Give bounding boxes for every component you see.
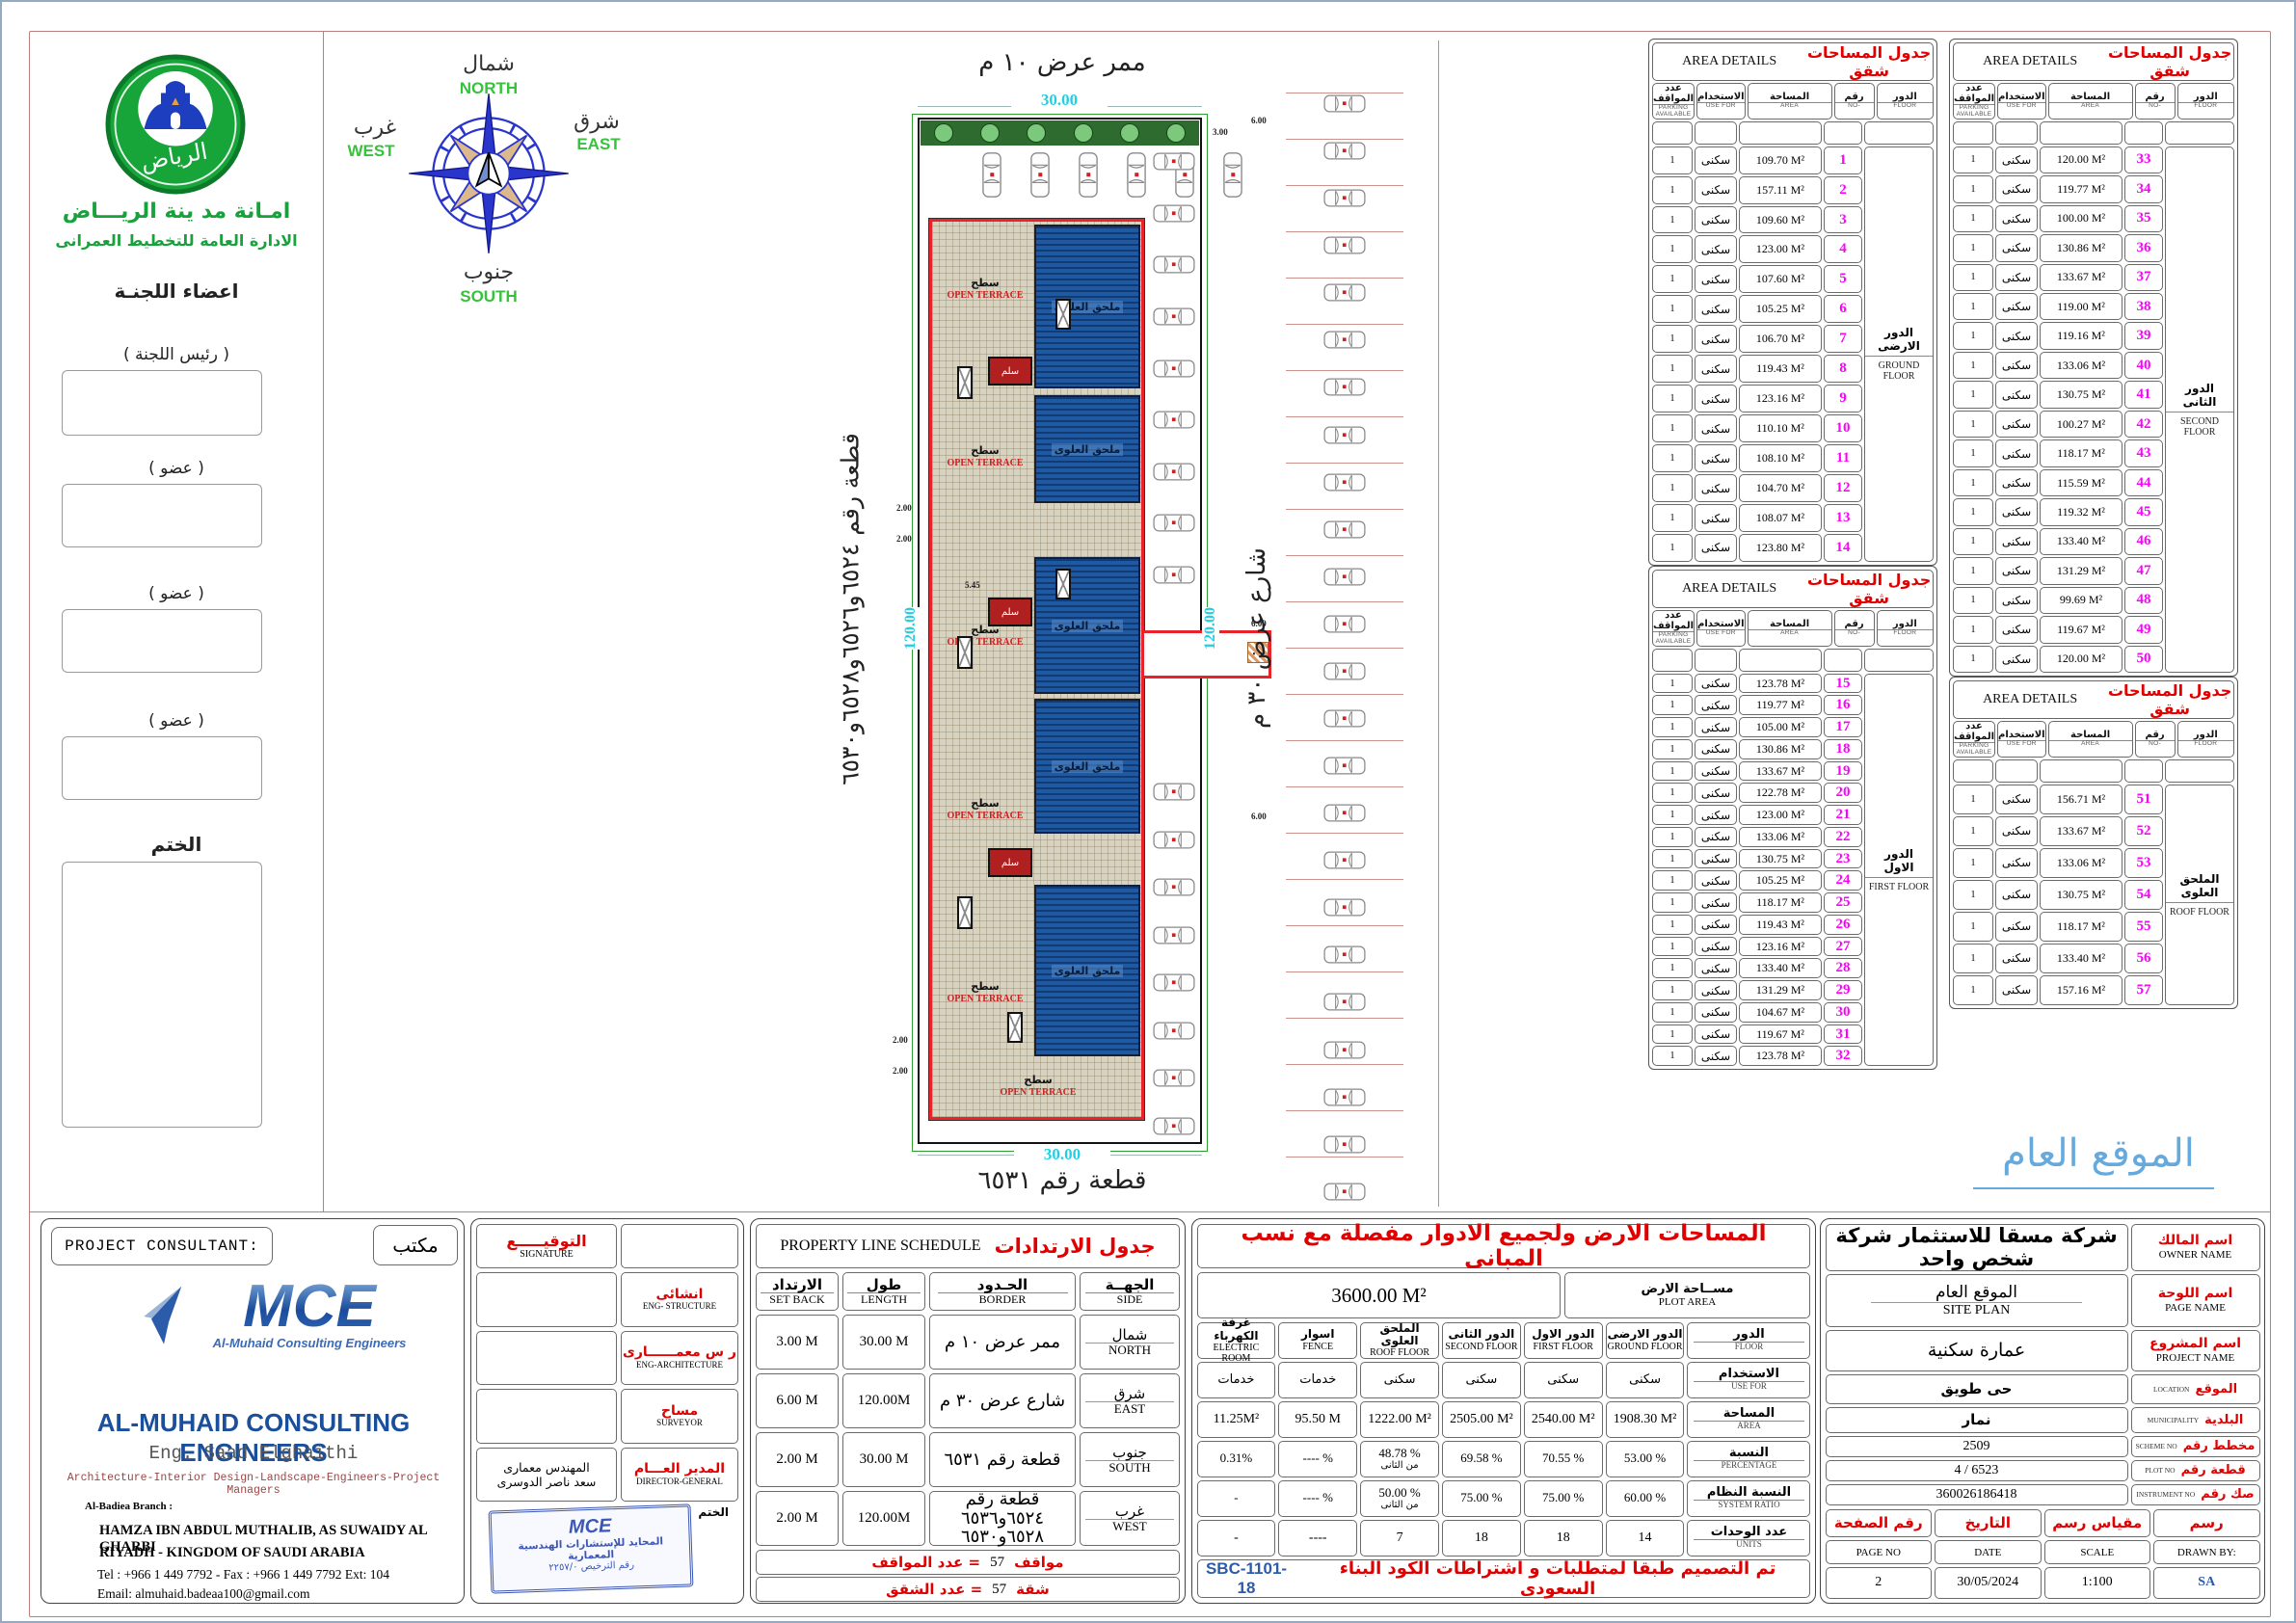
parking-cell: 1	[1652, 849, 1693, 869]
ratio-value-cell: 95.50 M	[1278, 1401, 1357, 1438]
parking-cell: 1	[1953, 381, 1993, 408]
use-cell: سكنى	[1995, 411, 2038, 438]
parking-cell: 1	[1652, 295, 1693, 323]
consultant-engineer: Eng. Saad Elghaithi	[41, 1443, 466, 1464]
header-cell: رقمNO-	[1834, 83, 1875, 120]
street-edge-line	[1438, 40, 1439, 1207]
parked-car-icon	[1286, 1086, 1403, 1108]
south-plot-label: قطعة رقم ٦٥٣١	[947, 1166, 1178, 1195]
parked-car-icon	[1286, 140, 1403, 162]
parked-car-icon	[1149, 781, 1199, 803]
area-table-title: AREA DETAILSجدول المساحات شقق	[1953, 680, 2234, 719]
info-value: حى طويق	[1826, 1374, 2128, 1404]
header-cell: المساحةAREA	[1748, 610, 1832, 647]
stamp-mce: MCE	[569, 1515, 612, 1538]
use-cell: سكنى	[1995, 146, 2038, 173]
header-cell: عدد المواقفPARKING AVAILABLE	[1652, 83, 1695, 120]
apartment-no-cell: 40	[2124, 352, 2163, 379]
shaft-box	[1007, 1012, 1023, 1043]
parked-car-icon	[1286, 329, 1403, 351]
apartment-no-cell: 38	[2124, 293, 2163, 320]
area-cell: 133.40 M²	[2040, 944, 2122, 973]
area-cell: 107.60 M²	[1739, 265, 1822, 293]
area-cell: 104.70 M²	[1739, 474, 1822, 502]
area-cell: 130.75 M²	[1739, 849, 1822, 869]
area-table-ground: AREA DETAILSجدول المساحات شققعدد المواقف…	[1648, 39, 1937, 566]
use-cell: سكنى	[1695, 915, 1737, 935]
use-cell: سكنى	[1995, 322, 2038, 349]
parking-cell: 1	[1953, 234, 1993, 261]
apartment-no-cell: 24	[1824, 870, 1862, 891]
use-cell: سكنى	[1695, 474, 1737, 502]
parked-car-icon	[1149, 358, 1199, 380]
area-cell: 157.16 M²	[2040, 975, 2122, 1005]
east-street-label: شارع عرض ٣٠ م	[1242, 547, 1271, 729]
apartment-no-cell: 30	[1824, 1002, 1862, 1023]
parking-cell: 1	[1652, 717, 1693, 737]
parked-car-icon	[1286, 991, 1403, 1013]
apartment-no-cell: 36	[2124, 234, 2163, 261]
apartment-no-cell: 53	[2124, 848, 2163, 878]
floor-cell: الملحق العلوىROOF FLOOR	[2165, 785, 2234, 1005]
apartment-no-cell: 16	[1824, 695, 1862, 715]
shaft-box	[1055, 569, 1071, 599]
header-cell: رقمNO-	[1834, 610, 1875, 647]
area-cell: 109.60 M²	[1739, 206, 1822, 234]
apartment-no-cell: 50	[2124, 646, 2163, 673]
area-cell: 133.06 M²	[1739, 827, 1822, 847]
area-cell: 110.10 M²	[1739, 414, 1822, 442]
info-label: SCHEME NOمخطط رقم	[2131, 1436, 2260, 1457]
address-line2: RIYADH - KINGDOM OF SAUDI ARABIA	[99, 1545, 461, 1561]
roof-annex-block: ملحق العلوى	[1034, 395, 1140, 503]
parking-cell: 1	[1652, 958, 1693, 978]
parked-car-icon	[1149, 1115, 1199, 1137]
ratio-value-cell: 18	[1442, 1520, 1521, 1556]
parked-car-icon	[1286, 660, 1403, 682]
info-value: شركة مسقا للاستثمار شركة شخص واحد	[1826, 1224, 2128, 1271]
use-cell: سكنى	[1995, 205, 2038, 232]
ratio-value-cell: -	[1197, 1520, 1276, 1556]
area-cell: 123.16 M²	[1739, 385, 1822, 412]
header-cell: رقمNO-	[2135, 721, 2176, 758]
member-signature-box	[62, 484, 262, 547]
ratio-row-label: النسبة النظامSYSTEM RATIO	[1687, 1480, 1810, 1517]
length-cell: 30.00 M	[842, 1315, 925, 1370]
use-cell: سكنى	[1695, 827, 1737, 847]
parking-cell: 1	[1953, 411, 1993, 438]
info-value: 4 / 6523	[1826, 1460, 2128, 1481]
parked-car-icon	[1286, 519, 1403, 541]
parked-car-icon	[1149, 876, 1199, 898]
use-cell: سكنى	[1995, 785, 2038, 814]
title-strip-cell: التاريخDATE30/05/2024	[1934, 1507, 2043, 1600]
area-cell: 133.06 M²	[2040, 848, 2122, 878]
apartment-no-cell: 4	[1824, 235, 1862, 263]
member-signature-box	[62, 736, 262, 800]
use-cell: سكنى	[1995, 381, 2038, 408]
area-cell: 105.00 M²	[1739, 717, 1822, 737]
area-table-second: AREA DETAILSجدول المساحات شققعدد المواقف…	[1949, 39, 2238, 677]
compass-east-ar: شرق	[563, 110, 630, 134]
area-cell: 133.40 M²	[2040, 528, 2122, 555]
parking-cell: 1	[1652, 146, 1693, 174]
member-label: ( عضو )	[40, 711, 312, 731]
signature-space: المهندس معمارىسعد ناصر الدوسرى	[476, 1448, 617, 1503]
info-row: 4 / 6523PLOT NOقطعة رقم	[1824, 1458, 2261, 1482]
parked-car-icon	[1286, 707, 1403, 730]
apartment-no-cell: 37	[2124, 264, 2163, 291]
use-cell: سكنى	[1995, 944, 2038, 973]
ratio-row-label: المساحةAREA	[1687, 1401, 1810, 1438]
ratio-value-cell: سكنى	[1442, 1362, 1521, 1398]
use-cell: سكنى	[1995, 293, 2038, 320]
parked-car-icon	[1286, 376, 1403, 398]
area-cell: 118.17 M²	[1739, 892, 1822, 913]
parking-cell: 1	[1652, 1002, 1693, 1023]
apartment-no-cell: 10	[1824, 414, 1862, 442]
parked-car-icon	[1149, 924, 1199, 946]
length-cell: 120.00M	[842, 1491, 925, 1546]
parking-cell: 1	[1953, 587, 1993, 614]
parking-cell: 1	[1652, 695, 1693, 715]
ratio-value-cell: 0.31%	[1197, 1441, 1276, 1477]
compass-west-en: WEST	[337, 142, 405, 161]
stair-block: سلم	[988, 848, 1032, 877]
use-cell: سكنى	[1695, 761, 1737, 782]
side-cell: جنوبSOUTH	[1080, 1432, 1180, 1487]
parked-car-icon	[1286, 234, 1403, 256]
ratio-value-cell: غرفة الكهرباءELECTRIC ROOM	[1197, 1322, 1276, 1359]
shaft-box	[957, 366, 973, 399]
area-cell: 133.67 M²	[1739, 761, 1822, 782]
area-cell: 119.32 M²	[2040, 498, 2122, 525]
apartment-no-cell: 23	[1824, 849, 1862, 869]
authority-name: امـانة مد ينة الريـــاض	[40, 200, 312, 224]
apartment-no-cell: 56	[2124, 944, 2163, 973]
ratio-row: -----7181814عدد الوحداتUNITS	[1195, 1518, 1812, 1557]
area-cell: 123.80 M²	[1739, 534, 1822, 562]
ratio-value-cell: 2540.00 M²	[1524, 1401, 1603, 1438]
parking-cell: 1	[1953, 975, 1993, 1005]
apartment-no-cell: 27	[1824, 937, 1862, 957]
signature-space	[476, 1389, 617, 1444]
parking-cell: 1	[1652, 980, 1693, 1000]
floor-cell: الدور الاولFIRST FLOOR	[1864, 674, 1934, 1066]
parked-car-icon	[1286, 849, 1403, 871]
area-cell: 130.86 M²	[1739, 739, 1822, 759]
parking-cell: 1	[1953, 175, 1993, 202]
ratio-row-label: عدد الوحداتUNITS	[1687, 1520, 1810, 1556]
units-count-row: عدد الشقق = 57 شقة	[756, 1577, 1180, 1602]
info-value: 360026186418	[1826, 1484, 2128, 1505]
signature-role-label: انشائىENG- STRUCTURE	[621, 1272, 738, 1327]
area-cell: 119.67 M²	[1739, 1024, 1822, 1045]
use-cell: سكنى	[1995, 912, 2038, 942]
apartment-no-cell: 29	[1824, 980, 1862, 1000]
ratio-value-cell: 11.25M²	[1197, 1401, 1276, 1438]
area-table-title: AREA DETAILSجدول المساحات شقق	[1652, 570, 1934, 608]
apartment-no-cell: 35	[2124, 205, 2163, 232]
header-cell: الاستخدامUSE FOR	[1696, 610, 1746, 647]
header-cell: الدورFLOOR	[1877, 83, 1934, 120]
schedule-header-cell: الارتدادSET BACK	[756, 1272, 839, 1311]
parked-car-icon	[968, 163, 1016, 187]
parked-car-icon	[1149, 564, 1199, 586]
schedule-header-cell: الجهــةSIDE	[1080, 1272, 1180, 1311]
property-schedule-section: PROPERTY LINE SCHEDULE جدول الارتدادات ا…	[750, 1218, 1186, 1604]
stair-block: سلم	[988, 598, 1032, 626]
use-cell: سكنى	[1695, 146, 1737, 174]
use-cell: سكنى	[1995, 175, 2038, 202]
terrace-label: سطحOPEN TERRACE	[944, 798, 1027, 821]
building-outline: ملحق العلوى ملحق العلوى ملحق العلوى ملحق…	[929, 219, 1144, 1120]
floor-cell: الدور الثانىSECOND FLOOR	[2165, 146, 2234, 673]
use-cell: سكنى	[1695, 534, 1737, 562]
top-dimension: 30.00	[1011, 91, 1108, 110]
use-cell: سكنى	[1995, 848, 2038, 878]
header-cell: الاستخدامUSE FOR	[1997, 83, 2046, 120]
parked-car-icon	[1149, 512, 1199, 534]
parking-cell: 1	[1652, 915, 1693, 935]
inner-parking-bottom	[1149, 781, 1199, 1137]
branch-label: Al-Badiea Branch :	[85, 1501, 173, 1512]
parked-car-icon	[1286, 566, 1403, 588]
area-table-body: 111111111111111111سكنىسكنىسكنىسكنىسكنىسك…	[1952, 120, 2235, 674]
title-strip-cell: مقياس رسمSCALE1:100	[2042, 1507, 2152, 1600]
parking-cell: 1	[1652, 504, 1693, 532]
consultant-section: PROJECT CONSULTANT: مكتب MCE Al-Muhaid C…	[40, 1218, 465, 1604]
use-cell: سكنى	[1995, 646, 2038, 673]
terrace-label: سطحOPEN TERRACE	[944, 445, 1027, 468]
stamp-label: الختم	[40, 833, 312, 856]
header-cell: المساحةAREA	[2048, 83, 2133, 120]
parking-cell: 1	[1652, 761, 1693, 782]
area-table-title: AREA DETAILSجدول المساحات شقق	[1652, 42, 1934, 81]
shaft-box	[957, 896, 973, 929]
tree-icon	[1166, 123, 1186, 143]
consultant-header: PROJECT CONSULTANT:	[51, 1227, 273, 1265]
design-code-note: SBC-1101-18 تم التصميم طبقا لمتطلبات و ا…	[1197, 1559, 1810, 1598]
area-table-header: عدد المواقفPARKING AVAILABLEالاستخدامUSE…	[1651, 82, 1935, 120]
use-cell: سكنى	[1995, 439, 2038, 466]
signature-space	[476, 1272, 617, 1327]
header-cell: الدورFLOOR	[2177, 721, 2234, 758]
parking-cell: 1	[1953, 912, 1993, 942]
area-cell: 120.00 M²	[2040, 146, 2122, 173]
header-cell: الاستخدامUSE FOR	[1997, 721, 2046, 758]
area-table-title-ar: جدول المساحات شقق	[1805, 571, 1933, 607]
ratio-value-cell: سكنى	[1524, 1362, 1603, 1398]
signature-row: ر س معمــــــارىENG-ARCHITECTURE	[474, 1329, 740, 1388]
area-cell: 118.17 M²	[2040, 912, 2122, 942]
dim-3: 3.00	[1213, 127, 1228, 137]
side-cell: غربWEST	[1080, 1491, 1180, 1546]
consultant-services: Architecture-Interior Design-Landscape-E…	[41, 1472, 466, 1497]
area-cell: 131.29 M²	[1739, 980, 1822, 1000]
parking-cell: 1	[1953, 944, 1993, 973]
parked-car-icon	[1016, 163, 1064, 187]
parked-car-icon	[1286, 471, 1403, 493]
use-cell: سكنى	[1695, 414, 1737, 442]
area-cell: 156.71 M²	[2040, 785, 2122, 814]
apartment-no-cell: 52	[2124, 816, 2163, 846]
east-dimension: 120.00	[1202, 607, 1219, 650]
ratio-value-cell: الدور الثانىSECOND FLOOR	[1442, 1322, 1521, 1359]
parking-cell: 1	[1953, 146, 1993, 173]
signature-title-spacer	[621, 1224, 738, 1268]
signature-title: التوقيـــــع SIGNATURE	[476, 1224, 617, 1268]
terrace-label: سطحOPEN TERRACE	[944, 981, 1027, 1004]
use-cell: سكنى	[1695, 805, 1737, 825]
area-cell: 131.29 M²	[2040, 557, 2122, 584]
apartment-no-cell: 55	[2124, 912, 2163, 942]
area-table-header: عدد المواقفPARKING AVAILABLEالاستخدامUSE…	[1651, 609, 1935, 648]
area-cell: 119.67 M²	[2040, 616, 2122, 643]
compass-east-en: EAST	[565, 135, 632, 154]
area-cell: 100.00 M²	[2040, 205, 2122, 232]
ratio-value-cell: سكنى	[1606, 1362, 1685, 1398]
area-cell: 106.70 M²	[1739, 325, 1822, 353]
tree-icon	[980, 123, 1000, 143]
parking-cell: 1	[1652, 739, 1693, 759]
area-cell: 104.67 M²	[1739, 1002, 1822, 1023]
area-cell: 105.25 M²	[1739, 295, 1822, 323]
info-value: الموقع العامSITE PLAN	[1826, 1274, 2128, 1327]
use-cell: سكنى	[1695, 444, 1737, 472]
parked-car-icon	[1149, 202, 1199, 225]
west-plots-label: قطعة رقم ٦٥٢٤و٦٥٢٦و٦٥٢٨و٦٥٣٠	[837, 433, 865, 785]
parking-cell: 1	[1953, 352, 1993, 379]
apartment-no-cell: 51	[2124, 785, 2163, 814]
ratio-value-cell: الدور الاولFIRST FLOOR	[1524, 1322, 1603, 1359]
site-overview-underline	[1973, 1187, 2214, 1189]
ratio-value-cell: خدمات	[1197, 1362, 1276, 1398]
apartment-no-cell: 39	[2124, 322, 2163, 349]
setback-cell: 3.00 M	[756, 1315, 839, 1370]
area-table-title-ar: جدول المساحات شقق	[2106, 681, 2233, 718]
apartment-no-cell: 42	[2124, 411, 2163, 438]
mce-logo: MCE Al-Muhaid Consulting Engineers	[99, 1279, 417, 1370]
ratio-row-label: الدورFLOOR	[1687, 1322, 1810, 1359]
area-table-first: AREA DETAILSجدول المساحات شققعدد المواقف…	[1648, 566, 1937, 1070]
parked-car-icon	[1286, 187, 1403, 209]
apartment-no-cell: 57	[2124, 975, 2163, 1005]
ratio-value-cell: خدمات	[1278, 1362, 1357, 1398]
area-table-title-en: AREA DETAILS	[1653, 54, 1805, 69]
parking-cell: 1	[1652, 892, 1693, 913]
area-cell: 133.67 M²	[2040, 264, 2122, 291]
drawing-sheet: الرياض امـانة مد ينة الريـــاض الادارة ا…	[0, 0, 2296, 1623]
parking-cell: 1	[1652, 870, 1693, 891]
apartment-no-cell: 48	[2124, 587, 2163, 614]
email-line: Email: almuhaid.badeaa100@gmail.com	[97, 1586, 462, 1602]
member-label: ( عضو )	[40, 584, 312, 603]
area-cell: 130.75 M²	[2040, 381, 2122, 408]
signature-row: انشائىENG- STRUCTURE	[474, 1270, 740, 1329]
use-cell: سكنى	[1995, 528, 2038, 555]
ratio-value-cell: ----	[1278, 1520, 1357, 1556]
area-table-header: عدد المواقفPARKING AVAILABLEالاستخدامUSE…	[1952, 82, 2235, 120]
roof-annex-block: ملحق العلوى	[1034, 557, 1140, 694]
parking-cell: 1	[1652, 355, 1693, 383]
schedule-header-cell: الحـدودBORDER	[929, 1272, 1076, 1311]
ratio-row: غرفة الكهرباءELECTRIC ROOMاسوارFENCEالمل…	[1195, 1320, 1812, 1360]
apartment-no-cell: 43	[2124, 439, 2163, 466]
header-cell: الاستخدامUSE FOR	[1696, 83, 1746, 120]
info-row: عمارة سكنيةاسم المشروعPROJECT NAME	[1824, 1328, 2261, 1372]
use-cell: سكنى	[1695, 235, 1737, 263]
use-cell: سكنى	[1695, 937, 1737, 957]
ratio-value-cell: الدور الارضىGROUND FLOOR	[1606, 1322, 1685, 1359]
use-cell: سكنى	[1695, 892, 1737, 913]
info-row: الموقع العامSITE PLANاسم اللوحةPAGE NAME	[1824, 1272, 2261, 1328]
parking-cell: 1	[1652, 325, 1693, 353]
info-value: عمارة سكنية	[1826, 1330, 2128, 1371]
ratio-row: ----- %50.00 %من الثانى75.00 %75.00 %60.…	[1195, 1478, 1812, 1518]
authority-dept: الادارة العامة للتخطيط العمرانى	[40, 231, 312, 250]
parking-cell: 1	[1953, 816, 1993, 846]
use-cell: سكنى	[1995, 469, 2038, 496]
area-cell: 108.07 M²	[1739, 504, 1822, 532]
parked-car-icon	[1286, 802, 1403, 824]
header-cell: الدورFLOOR	[2177, 83, 2234, 120]
parked-car-icon	[1149, 253, 1199, 276]
committee-title: اعضاء اللجنـة	[40, 279, 312, 303]
tree-icon	[934, 123, 953, 143]
parking-cell: 1	[1953, 498, 1993, 525]
parking-cell: 1	[1953, 616, 1993, 643]
dim-2: 2.00	[893, 1035, 908, 1045]
parking-cell: 1	[1953, 322, 1993, 349]
area-cell: 99.69 M²	[2040, 587, 2122, 614]
parking-cell: 1	[1953, 848, 1993, 878]
stamp-box	[62, 862, 262, 1128]
signature-row: المهندس معمارىسعد ناصر الدوسرىالمدير الع…	[474, 1446, 740, 1504]
parked-car-icon	[1149, 461, 1199, 483]
company-stamp: MCE المحايد للإستشارات الهندسية المعماري…	[489, 1503, 694, 1593]
member-signature-box	[62, 609, 262, 673]
header-cell: عدد المواقفPARKING AVAILABLE	[1652, 610, 1695, 647]
parked-car-icon	[1149, 1020, 1199, 1042]
compass-south-ar: جنوب	[441, 260, 537, 284]
border-cell: قطعة رقم ٦٥٣١	[929, 1432, 1076, 1487]
use-cell: سكنى	[1995, 587, 2038, 614]
header-cell: عدد المواقفPARKING AVAILABLE	[1953, 83, 1995, 120]
info-section: شركة مسقا للاستثمار شركة شخص واحداسم الم…	[1820, 1218, 2265, 1604]
use-cell: سكنى	[1695, 674, 1737, 694]
parking-cell: 1	[1652, 385, 1693, 412]
ratio-value-cell: 50.00 %من الثانى	[1360, 1480, 1439, 1517]
left-panel-divider	[323, 31, 324, 1211]
info-row: 360026186418INSTRUMENT NOصك رقم	[1824, 1482, 2261, 1506]
area-cell: 123.00 M²	[1739, 235, 1822, 263]
ratio-value-cell: 14	[1606, 1520, 1685, 1556]
apartment-no-cell: 44	[2124, 469, 2163, 496]
parked-car-icon	[1286, 1133, 1403, 1156]
signature-section: التوقيـــــع SIGNATURE انشائىENG- STRUCT…	[470, 1218, 744, 1604]
use-cell: سكنى	[1695, 980, 1737, 1000]
apartment-no-cell: 26	[1824, 915, 1862, 935]
parking-cell: 1	[1953, 205, 1993, 232]
dim-2: 2.00	[893, 1066, 908, 1076]
parking-cell: 1	[1953, 528, 1993, 555]
area-table-title-en: AREA DETAILS	[1954, 692, 2106, 707]
area-cell: 130.86 M²	[2040, 234, 2122, 261]
parking-cell: 1	[1953, 785, 1993, 814]
parking-cell: 1	[1652, 474, 1693, 502]
tree-icon	[1120, 123, 1139, 143]
